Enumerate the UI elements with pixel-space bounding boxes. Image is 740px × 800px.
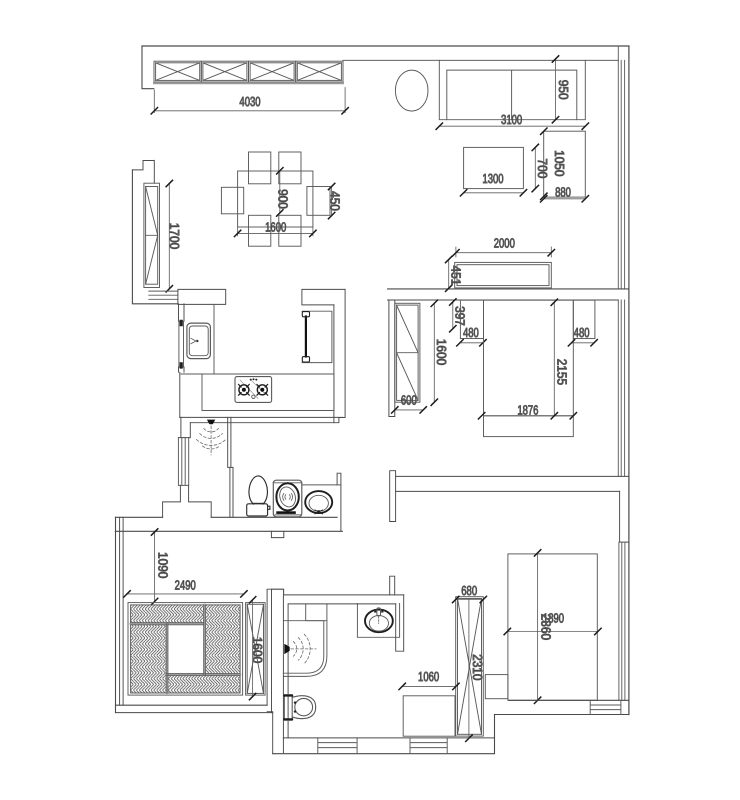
svg-text:2310: 2310 [470,654,485,680]
svg-text:2360: 2360 [538,614,553,640]
svg-text:900: 900 [275,189,290,209]
svg-text:1060: 1060 [418,669,439,684]
svg-text:700: 700 [535,158,550,178]
svg-text:480: 480 [574,325,590,340]
svg-text:1600: 1600 [250,637,265,663]
svg-text:3100: 3100 [501,112,522,127]
svg-text:450: 450 [328,191,343,211]
svg-text:600: 600 [401,392,417,407]
svg-text:451: 451 [449,265,464,285]
svg-text:2155: 2155 [554,359,569,385]
svg-text:480: 480 [463,325,479,340]
svg-text:2490: 2490 [175,577,196,592]
svg-text:1700: 1700 [167,223,182,249]
svg-text:680: 680 [461,583,477,598]
svg-text:950: 950 [556,80,571,100]
svg-text:880: 880 [555,185,571,200]
svg-text:1300: 1300 [482,171,503,186]
svg-text:1876: 1876 [517,402,538,417]
svg-text:2000: 2000 [494,236,515,251]
svg-text:1600: 1600 [265,219,286,234]
svg-text:1090: 1090 [155,552,170,578]
svg-text:4030: 4030 [239,94,260,109]
svg-text:1600: 1600 [434,339,449,365]
svg-text:1050: 1050 [552,150,567,176]
